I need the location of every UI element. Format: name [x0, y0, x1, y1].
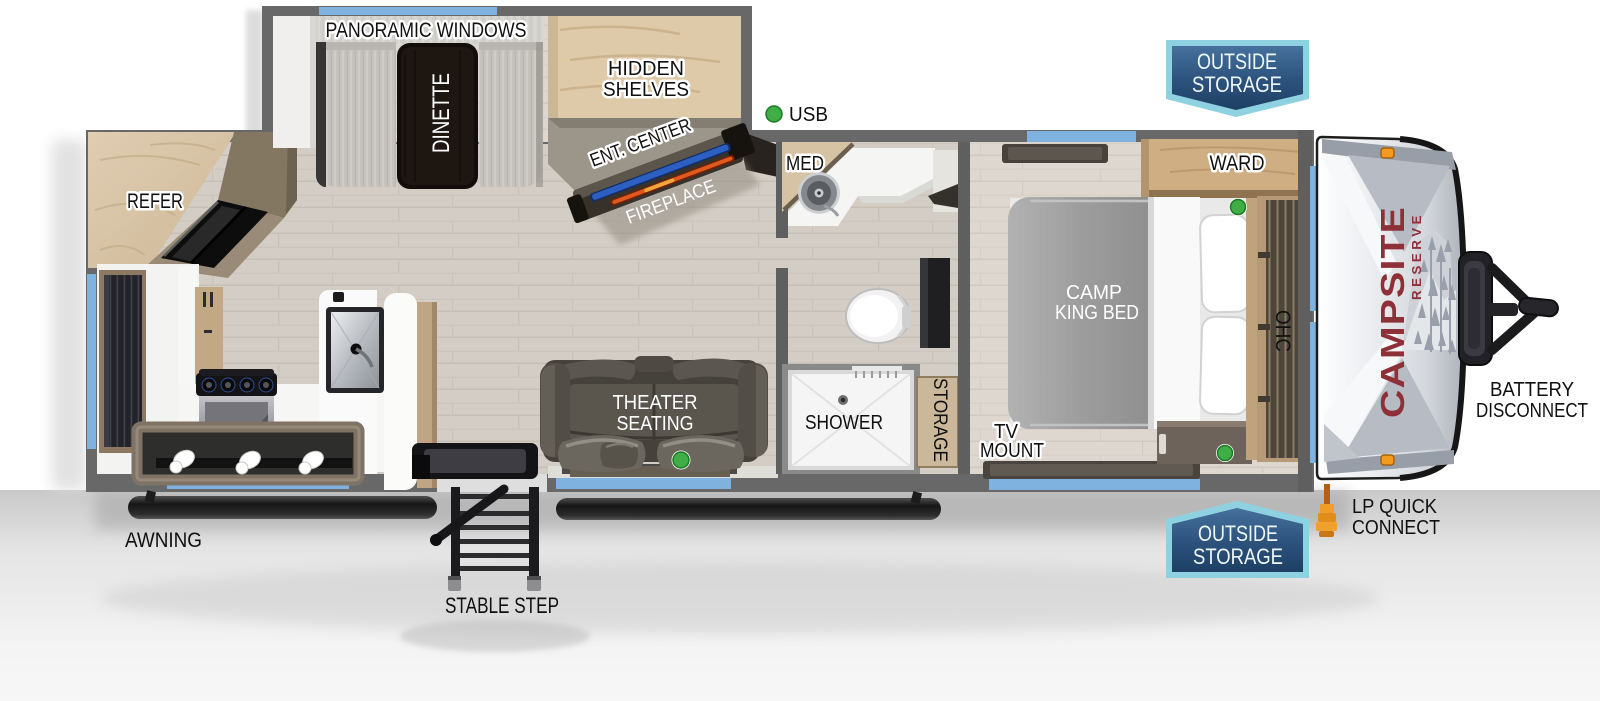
svg-text:STORAGE: STORAGE [1193, 544, 1283, 569]
svg-text:USB: USB [789, 104, 828, 126]
svg-text:OUTSIDE: OUTSIDE [1197, 49, 1277, 74]
svg-text:MOUNT: MOUNT [980, 440, 1044, 462]
svg-text:RESERVE: RESERVE [1409, 212, 1424, 300]
svg-text:STORAGE: STORAGE [1192, 72, 1282, 97]
svg-text:OHC: OHC [1271, 310, 1294, 352]
svg-text:WARD: WARD [1210, 152, 1265, 175]
svg-text:LP QUICK: LP QUICK [1352, 496, 1438, 518]
svg-text:STABLE STEP: STABLE STEP [445, 593, 559, 618]
svg-text:HIDDEN: HIDDEN [608, 58, 684, 80]
svg-text:SHOWER: SHOWER [805, 411, 883, 434]
svg-text:OUTSIDE: OUTSIDE [1198, 521, 1278, 546]
svg-text:STORAGE: STORAGE [929, 378, 950, 462]
svg-text:SEATING: SEATING [617, 413, 694, 435]
svg-text:CAMP: CAMP [1066, 282, 1122, 304]
svg-text:MED: MED [786, 153, 824, 175]
svg-text:DISCONNECT: DISCONNECT [1476, 400, 1588, 422]
svg-text:REFER: REFER [127, 190, 183, 213]
svg-text:AWNING: AWNING [125, 529, 202, 552]
svg-text:SHELVES: SHELVES [603, 79, 689, 101]
svg-text:THEATER: THEATER [613, 392, 698, 414]
svg-text:PANORAMIC WINDOWS: PANORAMIC WINDOWS [326, 19, 527, 42]
svg-text:BATTERY: BATTERY [1490, 379, 1574, 401]
svg-text:CONNECT: CONNECT [1352, 517, 1440, 539]
svg-text:KING BED: KING BED [1055, 302, 1139, 324]
svg-text:DINETTE: DINETTE [428, 73, 455, 153]
svg-text:CAMPSITE: CAMPSITE [1374, 206, 1411, 418]
